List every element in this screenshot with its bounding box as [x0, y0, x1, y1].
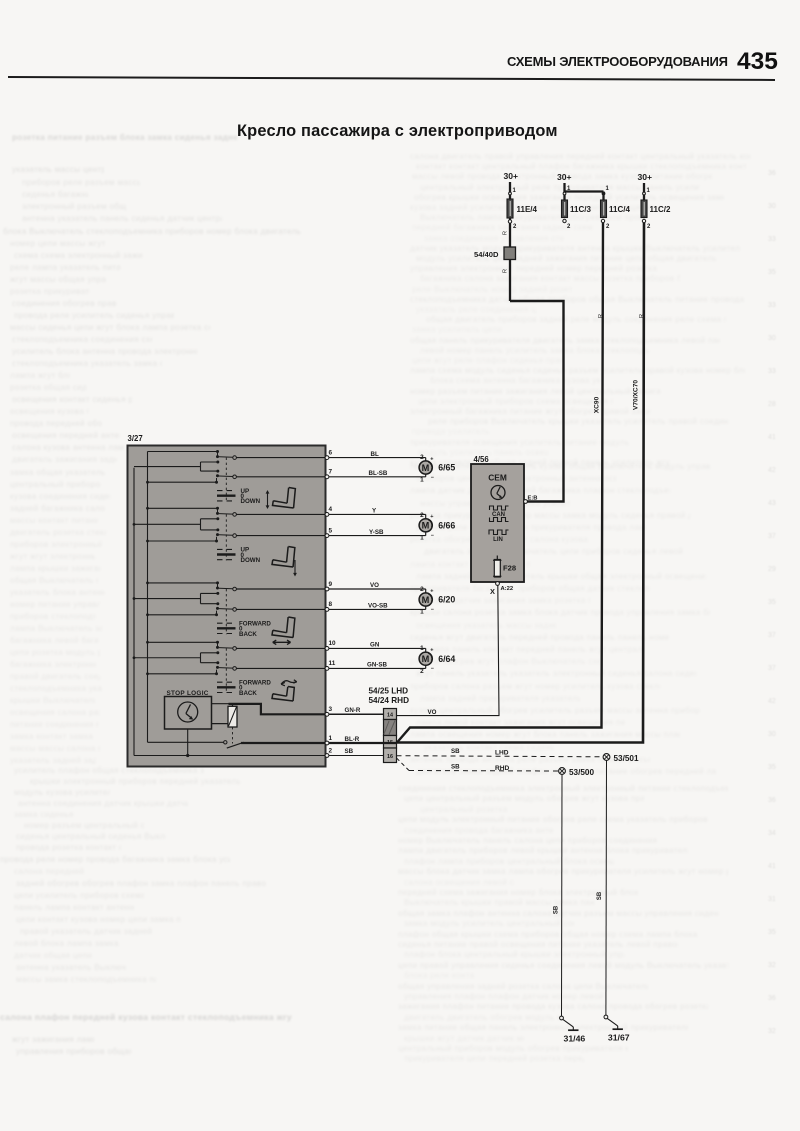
svg-text:+: + [430, 588, 433, 594]
svg-text:7: 7 [329, 469, 333, 476]
svg-text:4: 4 [329, 506, 333, 513]
svg-text:2: 2 [647, 224, 651, 230]
svg-text:Y-SB: Y-SB [369, 529, 384, 536]
svg-text:2: 2 [420, 454, 424, 461]
svg-text:31/67: 31/67 [608, 1033, 630, 1043]
svg-text:2: 2 [513, 224, 517, 230]
svg-text:3/27: 3/27 [128, 434, 143, 443]
svg-text:F28: F28 [503, 564, 516, 573]
svg-text:LHD: LHD [495, 750, 509, 757]
svg-text:30+: 30+ [504, 171, 519, 181]
svg-text:−: − [431, 533, 434, 539]
svg-text:1: 1 [420, 535, 424, 542]
svg-text:Y: Y [372, 508, 377, 515]
svg-text:E:B: E:B [528, 496, 538, 502]
svg-text:1: 1 [420, 477, 424, 484]
svg-text:DOWN: DOWN [241, 498, 261, 505]
svg-text:4/56: 4/56 [474, 455, 490, 464]
svg-text:54/25 LHD: 54/25 LHD [369, 687, 409, 696]
svg-text:+: + [430, 514, 433, 520]
svg-text:DOWN: DOWN [241, 557, 261, 564]
svg-text:V70/XC70: V70/XC70 [633, 380, 640, 410]
svg-text:RHD: RHD [495, 765, 510, 772]
svg-text:R: R [639, 314, 645, 318]
svg-text:6: 6 [329, 449, 333, 456]
svg-text:54/40D: 54/40D [474, 250, 499, 259]
svg-text:31/46: 31/46 [564, 1034, 586, 1044]
svg-text:SB: SB [451, 764, 460, 771]
svg-text:−: − [431, 666, 434, 672]
svg-text:1: 1 [513, 188, 517, 194]
svg-text:2: 2 [420, 586, 424, 593]
svg-text:+: + [430, 456, 433, 462]
svg-text:6/64: 6/64 [438, 654, 455, 664]
svg-text:11E/4: 11E/4 [517, 205, 538, 214]
svg-text:54/24 RHD: 54/24 RHD [369, 696, 410, 705]
svg-text:11C/2: 11C/2 [650, 205, 671, 214]
svg-text:SB: SB [597, 891, 603, 900]
svg-text:11C/3: 11C/3 [570, 205, 591, 214]
svg-text:6/66: 6/66 [438, 521, 455, 531]
svg-text:11: 11 [329, 660, 336, 667]
svg-text:SB: SB [451, 748, 460, 755]
svg-text:+: + [430, 648, 433, 654]
svg-text:30+: 30+ [638, 172, 653, 182]
svg-text:GN-SB: GN-SB [367, 662, 387, 669]
svg-text:M: M [422, 654, 430, 664]
svg-text:10: 10 [329, 640, 337, 647]
svg-text:1: 1 [647, 188, 651, 194]
svg-text:14: 14 [387, 713, 393, 719]
svg-text:53/500: 53/500 [569, 768, 594, 777]
svg-text:M: M [422, 521, 430, 531]
svg-text:2: 2 [420, 512, 424, 519]
svg-text:GN: GN [370, 642, 380, 649]
svg-text:5: 5 [329, 527, 333, 534]
svg-text:2: 2 [606, 224, 610, 230]
svg-text:16: 16 [387, 754, 393, 760]
svg-text:−: − [431, 607, 434, 613]
svg-text:6/20: 6/20 [438, 595, 455, 605]
svg-text:BL: BL [371, 451, 379, 458]
svg-text:R: R [503, 269, 509, 273]
svg-text:8: 8 [329, 601, 333, 608]
svg-text:1: 1 [606, 186, 610, 192]
svg-text:VO: VO [370, 582, 379, 589]
svg-text:M: M [422, 463, 430, 473]
svg-text:X: X [490, 587, 495, 596]
svg-text:2: 2 [567, 224, 571, 230]
svg-text:BACK: BACK [239, 690, 257, 697]
svg-text:FORWARD: FORWARD [239, 621, 271, 628]
svg-text:LIN: LIN [493, 537, 503, 543]
svg-text:−: − [431, 475, 434, 481]
svg-text:9: 9 [329, 581, 333, 588]
svg-text:GN-R: GN-R [345, 707, 361, 714]
svg-text:SB: SB [554, 905, 560, 914]
svg-text:R: R [598, 314, 604, 318]
svg-text:BACK: BACK [239, 631, 257, 638]
svg-text:30+: 30+ [557, 172, 572, 182]
svg-text:BL-SB: BL-SB [369, 470, 388, 477]
svg-text:2: 2 [329, 747, 333, 754]
svg-text:BL-R: BL-R [345, 736, 360, 743]
svg-text:3: 3 [329, 706, 333, 713]
svg-text:53/501: 53/501 [614, 754, 639, 763]
svg-text:CEM: CEM [488, 473, 507, 483]
svg-text:11C/4: 11C/4 [609, 205, 630, 214]
svg-text:VO: VO [428, 709, 437, 716]
svg-text:2: 2 [420, 668, 424, 675]
svg-text:XC90: XC90 [594, 396, 601, 413]
svg-text:FORWARD: FORWARD [239, 680, 271, 687]
svg-text:1: 1 [329, 735, 333, 742]
svg-text:1: 1 [420, 609, 424, 616]
svg-text:M: M [422, 595, 430, 605]
svg-text:A:22: A:22 [501, 586, 514, 592]
svg-text:VO-SB: VO-SB [368, 603, 388, 610]
svg-text:R: R [503, 231, 509, 235]
svg-text:1: 1 [420, 645, 424, 652]
svg-text:SB: SB [345, 748, 354, 755]
svg-text:6/65: 6/65 [438, 463, 455, 473]
